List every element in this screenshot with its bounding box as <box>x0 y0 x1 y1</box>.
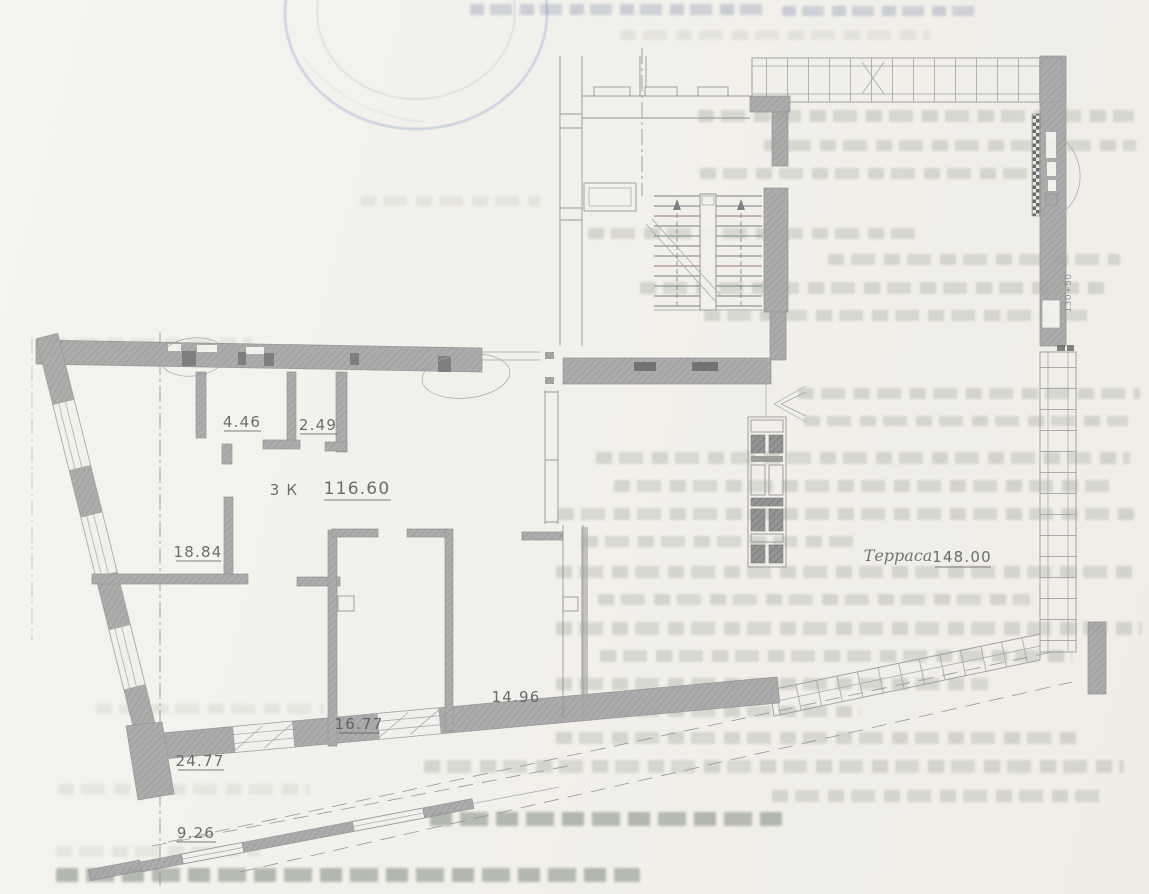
area-label-18-84: 18.84 <box>174 543 223 561</box>
scanned-page: 4.46 2.49 18.84 3 К 116.60 16.77 14.96 2… <box>0 0 1149 894</box>
right-terrace-railing <box>1040 352 1076 652</box>
dimension-note: 130+50 <box>1064 273 1074 312</box>
area-label-4-46: 4.46 <box>223 413 261 431</box>
area-label-24-77: 24.77 <box>176 752 225 770</box>
floor-plan: 4.46 2.49 18.84 3 К 116.60 16.77 14.96 2… <box>0 0 1149 894</box>
terrace-area: 148.00 <box>932 548 992 566</box>
terrace-label: Терраса <box>864 546 933 565</box>
area-label-16-77: 16.77 <box>335 715 384 733</box>
unit-total-area: 116.60 <box>324 479 391 499</box>
stair-hall-walls <box>545 56 790 384</box>
top-terrace-railing <box>752 58 1062 102</box>
staircase <box>646 194 762 310</box>
stamp-seal <box>285 0 547 129</box>
area-label-9-26: 9.26 <box>177 824 215 842</box>
area-label-2-49: 2.49 <box>299 416 337 434</box>
door-swing-arc <box>1066 142 1080 210</box>
unit-rooms-label: 3 К <box>270 481 299 499</box>
left-wall-windows <box>36 333 160 750</box>
bottom-wall <box>140 677 780 761</box>
duct-shafts <box>748 384 786 567</box>
elevator-shaft <box>584 183 636 211</box>
area-label-14-96: 14.96 <box>492 688 541 706</box>
